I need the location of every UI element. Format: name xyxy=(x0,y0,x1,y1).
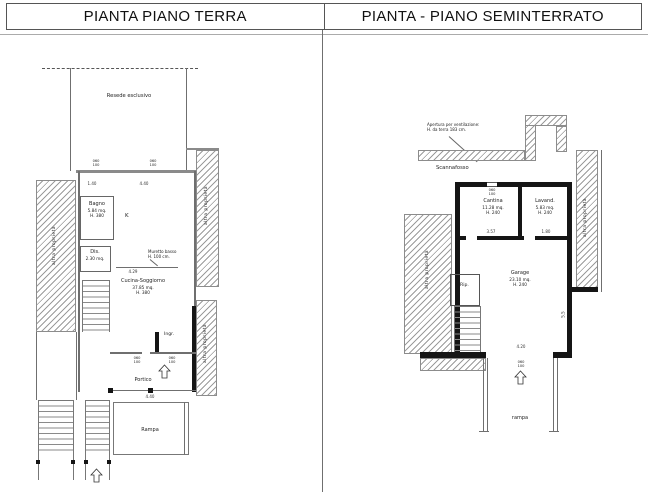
cucina-name: Cucina-Soggiorno xyxy=(121,278,165,285)
portico-label-block: Portico xyxy=(134,377,151,384)
portico-post xyxy=(108,388,113,393)
basement-plan xyxy=(324,0,648,492)
resede-boundary-dashed xyxy=(42,68,198,69)
kitchen-mark-label: K xyxy=(125,213,129,219)
resede-label: Resede esclusivo xyxy=(107,93,151,99)
window-tag-height: 100 xyxy=(489,193,496,197)
garage-room-label: Garage 23.10 mq. H. 240 xyxy=(509,270,530,288)
vent-note-line2: H. da terra 183 cm. xyxy=(427,127,479,132)
exterior-staircase-right xyxy=(85,400,110,455)
muretto-leader-line xyxy=(150,259,158,266)
portico-post xyxy=(148,388,153,393)
vent-note: Apertura per ventilazione: H. da terra 1… xyxy=(427,122,479,132)
exterior-staircase-left xyxy=(38,400,74,455)
neighbor-property-label: altra proprietà xyxy=(425,250,430,289)
bagno-height: H. 380 xyxy=(88,213,107,219)
cantina-room-label: Cantina 11.28 mq. H. 240 xyxy=(482,198,503,216)
cantina-lavanderia-divider-wall xyxy=(518,187,522,237)
garage-name: Garage xyxy=(509,270,530,277)
scannafosso-wall xyxy=(525,115,567,126)
ramp-label-block: rampa xyxy=(512,415,528,422)
portico-wall xyxy=(150,352,196,354)
entry-arrow-icon xyxy=(514,370,527,385)
portico-label: Portico xyxy=(134,377,151,384)
scannafosso-wall xyxy=(418,150,525,161)
dim-label: 4.29 xyxy=(129,269,138,274)
rampa-label-block: Rampa xyxy=(141,427,159,434)
door-opening xyxy=(524,236,535,240)
lavanderia-name: Lavand. xyxy=(535,198,555,205)
resede-side-line xyxy=(70,68,71,171)
neighbor-property-label: altra proprietà xyxy=(52,226,57,265)
dim-label: 1.40 xyxy=(88,181,97,186)
window-size-tag: 060 100 xyxy=(518,361,525,369)
bagno-room-label: Bagno 5.84 mq. H. 380 xyxy=(88,201,107,219)
exterior-wall-right xyxy=(194,171,196,307)
rampa-label: Rampa xyxy=(141,427,159,434)
dim-label: 4.40 xyxy=(146,394,155,399)
ramp-end-tick xyxy=(549,431,559,432)
ground-floor-plan: Resede esclusivo 060 100 060 100 1.40 4.… xyxy=(0,0,324,492)
dim-label: 4.40 xyxy=(140,181,149,186)
basement-wall-bottom-right xyxy=(553,352,572,358)
cantina-height: H. 240 xyxy=(482,210,503,216)
basement-staircase xyxy=(454,306,481,352)
cucina-room-label: Cucina-Soggiorno 37.85 mq. H. 380 xyxy=(121,278,165,296)
muretto-line xyxy=(116,267,178,268)
entry-arrow-icon xyxy=(90,468,103,483)
rip-label: Rip. xyxy=(460,283,469,288)
exterior-wall-right-black xyxy=(192,306,196,392)
dim-label: 5.5 xyxy=(561,311,566,317)
lavanderia-room-label: Lavand. 5.83 mq. H. 240 xyxy=(535,198,555,216)
ingresso-wall xyxy=(155,332,159,354)
staircase-side-walls xyxy=(38,455,74,480)
basement-wall-top xyxy=(455,182,572,187)
dim-label: 4.20 xyxy=(517,344,526,349)
stair-post xyxy=(107,460,111,464)
window-size-tag: 060 100 xyxy=(150,160,157,168)
stair-post xyxy=(84,460,88,464)
muretto-note: Muretto basso H. 100 cm. xyxy=(148,249,176,259)
ramp-wall-line xyxy=(553,358,554,432)
scannafosso-label: Scannafosso xyxy=(436,165,469,171)
bagno-name: Bagno xyxy=(88,201,107,208)
dis-name: Dis. xyxy=(86,249,105,256)
window-tag-height: 100 xyxy=(150,164,157,168)
cucina-height: H. 380 xyxy=(121,290,165,296)
stair-post xyxy=(71,460,75,464)
resede-side-line xyxy=(186,68,187,171)
cantina-name: Cantina xyxy=(482,198,503,205)
exterior-wall-top xyxy=(76,170,196,173)
portico-wall xyxy=(110,352,142,354)
basement-wall-corner xyxy=(572,287,598,292)
dis-area: 2.30 mq. xyxy=(86,256,105,262)
window-size-tag: 060 100 xyxy=(93,160,100,168)
lavanderia-height: H. 240 xyxy=(535,210,555,216)
dis-room-label: Dis. 2.30 mq. xyxy=(86,249,105,261)
neighbor-property-label: altra proprietà xyxy=(203,324,208,363)
basement-window xyxy=(487,182,497,187)
entry-arrow-icon xyxy=(158,364,171,379)
neighbor-property-label: altra proprietà xyxy=(583,198,588,237)
ingresso-label: Ingr. xyxy=(164,332,174,337)
muretto-note-line2: H. 100 cm. xyxy=(148,254,176,259)
window-tag-height: 100 xyxy=(134,361,141,365)
window-tag-height: 100 xyxy=(93,164,100,168)
ramp-wall-line xyxy=(487,358,488,432)
ramp-wall-line xyxy=(483,358,484,432)
basement-wall-right xyxy=(567,182,572,358)
stair-post xyxy=(36,460,40,464)
path-side-line xyxy=(76,332,77,400)
neighbor-property-label: altra proprietà xyxy=(204,186,209,225)
dim-label: 1.80 xyxy=(542,229,551,234)
interior-staircase xyxy=(82,280,110,332)
ramp-end-tick xyxy=(479,431,489,432)
ramp-label: rampa xyxy=(512,415,528,422)
dim-label: 3.57 xyxy=(487,229,496,234)
basement-foundation-hatch xyxy=(420,358,486,371)
window-size-tag: 060 100 xyxy=(134,357,141,365)
floor-plan-sheet: PIANTA PIANO TERRA PIANTA - PIANO SEMINT… xyxy=(0,0,648,492)
rampa-inner-line xyxy=(184,402,185,455)
window-tag-height: 100 xyxy=(518,365,525,369)
window-size-tag: 060 100 xyxy=(489,189,496,197)
door-opening xyxy=(466,236,477,240)
garage-height: H. 240 xyxy=(509,282,530,288)
scannafosso-wall xyxy=(556,126,567,152)
rip-room xyxy=(450,274,480,306)
path-side-line xyxy=(36,332,37,400)
ramp-wall-line xyxy=(557,358,558,432)
boundary-line xyxy=(601,150,602,292)
